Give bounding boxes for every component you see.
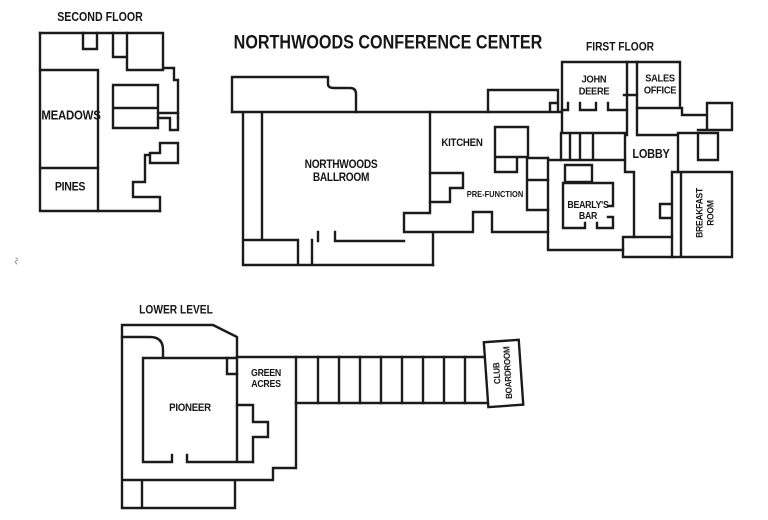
room-label-sales-office: SALES OFFICE [644,73,676,97]
room-label-meadows: MEADOWS [41,109,100,124]
room-label-green-acres: GREEN ACRES [251,368,281,390]
main-title: NORTHWOODS CONFERENCE CENTER [234,32,543,53]
small-rooms-row [561,110,625,160]
floor-plan-page: NORTHWOODS CONFERENCE CENTER SECOND FLOO… [0,0,768,520]
second-floor-hook [158,113,178,130]
room-label-club-boardroom: CLUB BOARDROOM [490,346,515,400]
corridor-dividers [296,357,465,403]
bearlys-closet [565,165,592,182]
room-label-john-deere: JOHN DEERE [579,74,610,98]
second-floor-tabs [83,33,163,70]
room-label-kitchen: KITCHEN [441,137,482,149]
room-label-breakfast-room: BREAKFAST ROOM [695,185,716,241]
room-label-prefunction: PRE-FUNCTION [467,190,524,200]
kitchen-walls [430,173,463,202]
room-label-pioneer: PIONEER [169,402,211,414]
room-label-northwoods-ballroom: NORTHWOODS BALLROOM [305,159,378,185]
room-label-pines: PINES [55,180,85,193]
lower-level-walls [122,325,523,508]
ballroom-entry [318,232,404,241]
second-floor-cluster [133,143,178,211]
scan-artifact [15,258,17,264]
kitchen-inner-rooms [495,127,528,172]
green-acres-steps [237,405,268,462]
lower-level-title: LOWER LEVEL [139,303,213,316]
room-label-bearlys-bar: BEARLY'S BAR [567,200,608,222]
prefunction-walls [527,158,548,210]
room-label-lobby: LOBBY [632,147,669,161]
kitchen-upper-box [488,90,562,112]
lower-level-inner-room [122,337,163,357]
lower-level-outline [122,325,296,508]
second-floor-middle-room [113,85,158,128]
first-floor-title: FIRST FLOOR [586,40,654,53]
second-floor-title: SECOND FLOOR [57,10,143,24]
right-nook [678,103,732,160]
